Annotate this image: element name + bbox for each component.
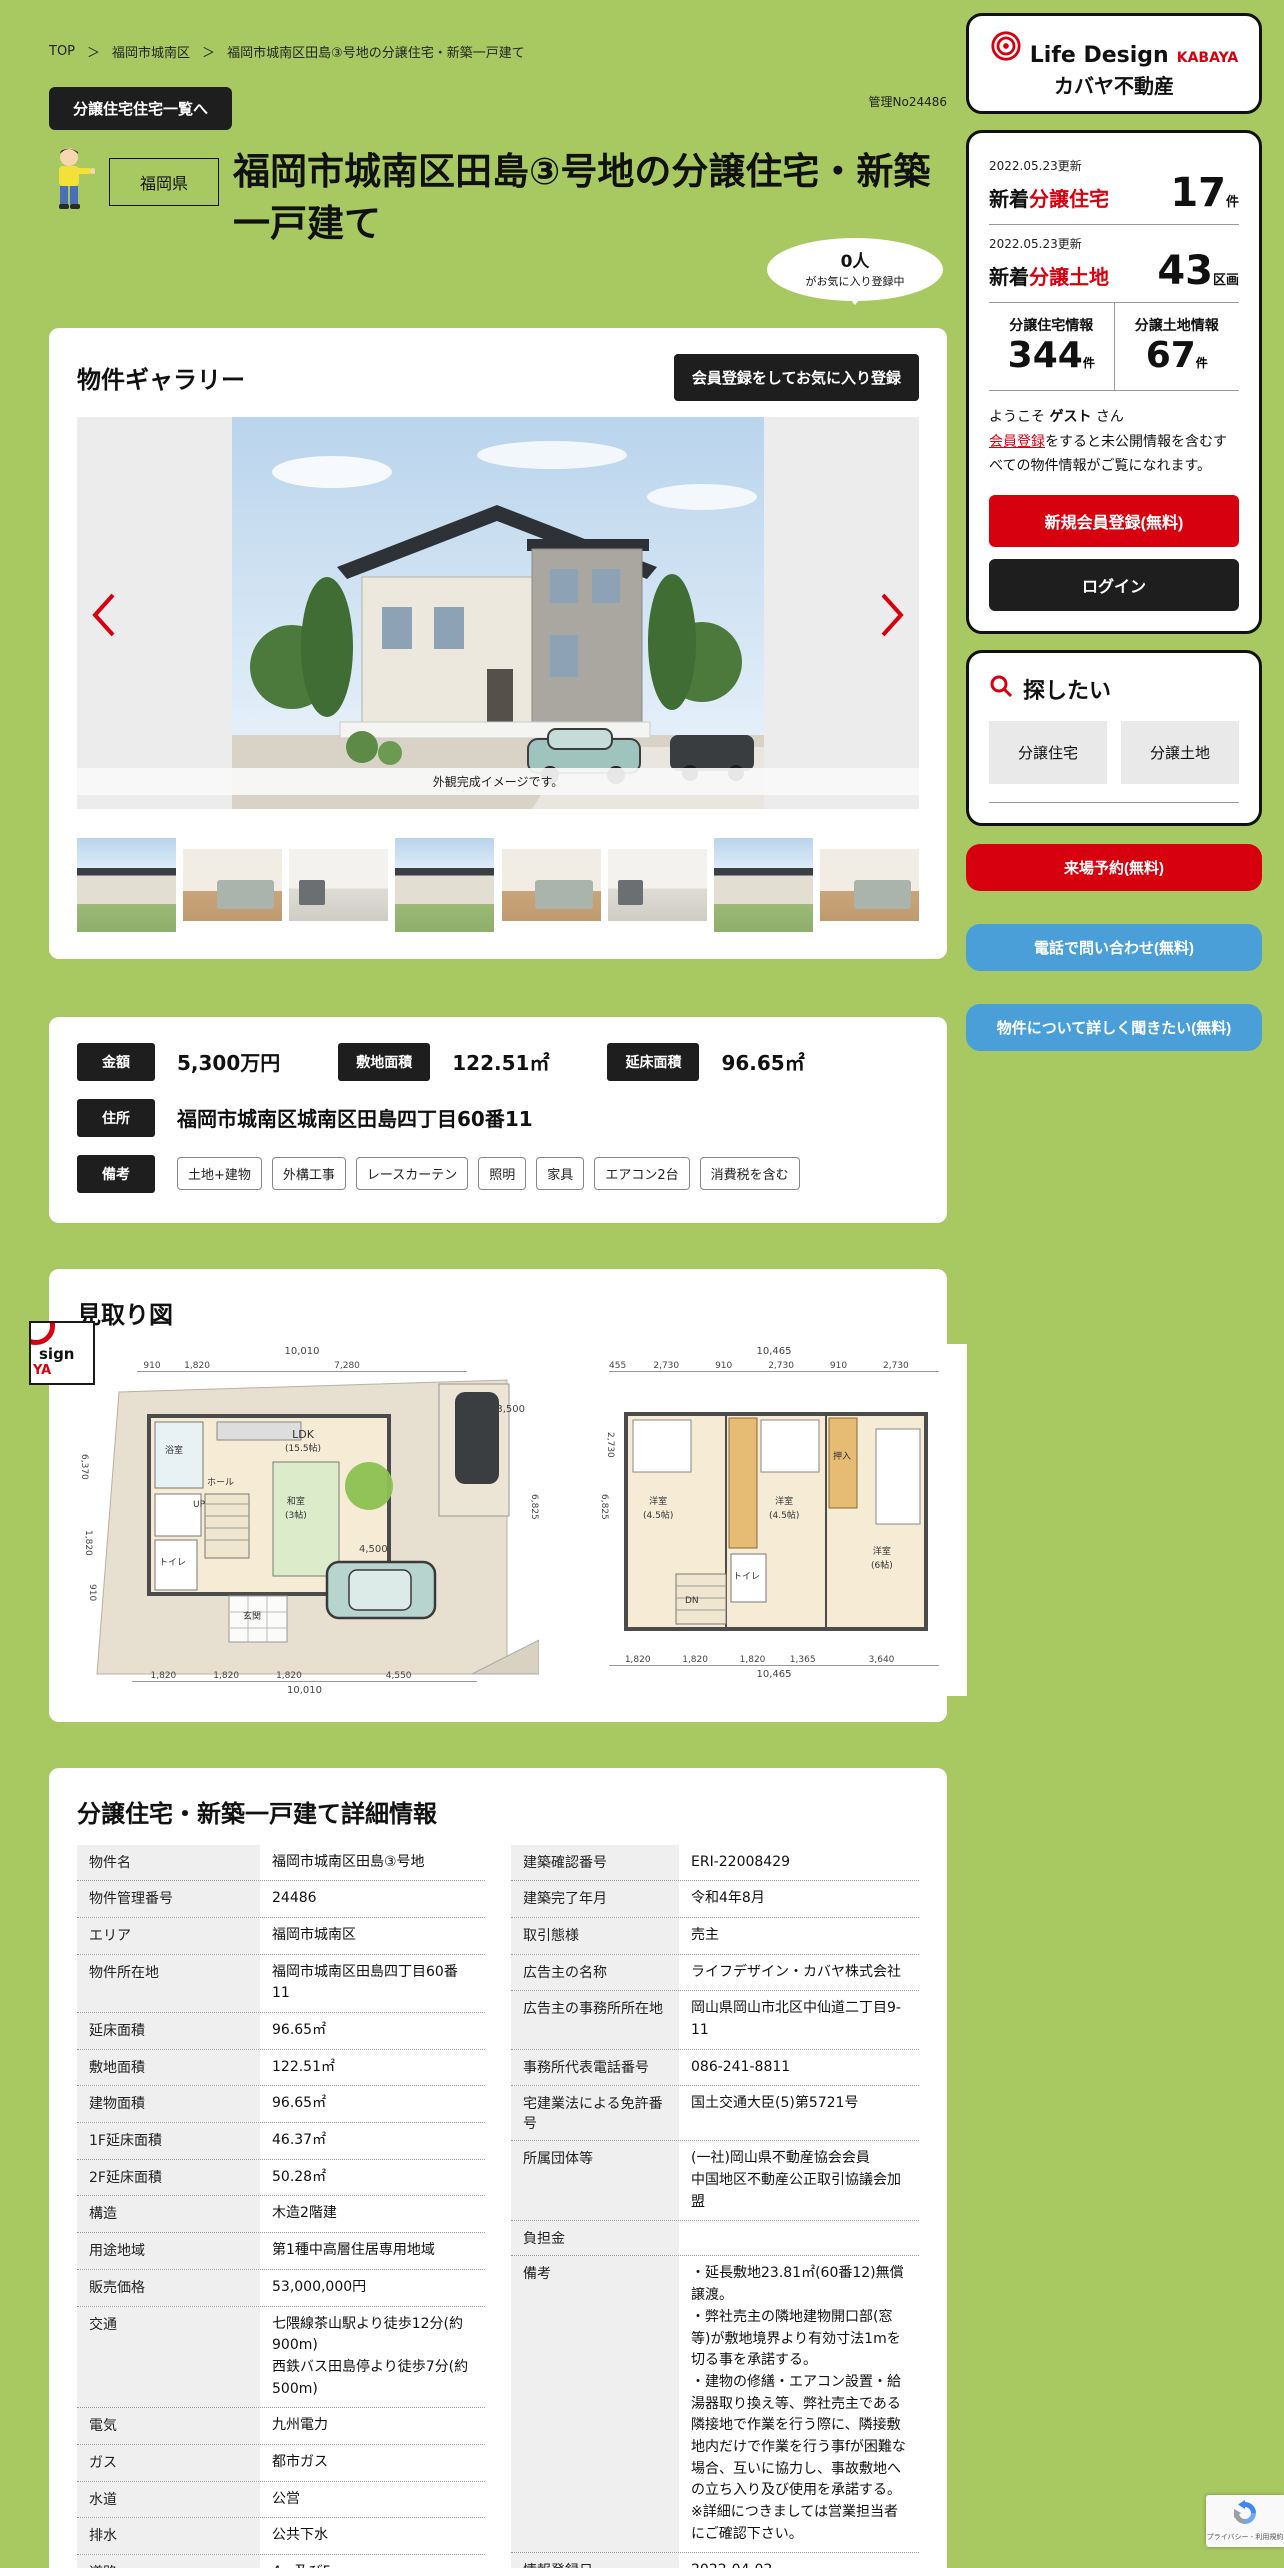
- total-land-count: 67: [1146, 335, 1196, 376]
- table-row: 取引態様売主: [511, 1918, 919, 1955]
- total-house-count: 344: [1008, 335, 1083, 376]
- gallery-prev-arrow[interactable]: [87, 589, 121, 641]
- table-row: 販売価格53,000,000円: [77, 2270, 485, 2307]
- dimension: 1,820: [83, 1530, 93, 1556]
- dimension: 6,370: [79, 1454, 89, 1480]
- member-register-link[interactable]: 会員登録: [989, 434, 1045, 450]
- back-to-list-button[interactable]: 分譲住宅住宅一覧へ: [49, 87, 232, 130]
- phone-inquiry-button[interactable]: 電話で問い合わせ(無料): [966, 924, 1262, 971]
- search-land-button[interactable]: 分譲土地: [1121, 721, 1239, 784]
- note-tag: 家具: [536, 1157, 584, 1190]
- room-label-washitsu: 和室(3帖): [285, 1494, 307, 1523]
- room-label-toilet: トイレ: [159, 1558, 186, 1569]
- search-house-button[interactable]: 分譲住宅: [989, 721, 1107, 784]
- details-table-left: 物件名福岡市城南区田島③号地 物件管理番号24486 エリア福岡市城南区 物件所…: [77, 1845, 485, 2568]
- search-icon: [989, 674, 1013, 704]
- table-row: 2F延床面積50.28㎡: [77, 2160, 485, 2197]
- table-row: ガス都市ガス: [77, 2445, 485, 2482]
- kabaya-logo-fragment: sign YA: [29, 1321, 95, 1385]
- floor-area-chip: 延床面積: [607, 1043, 699, 1081]
- table-row: 物件名福岡市城南区田島③号地: [77, 1845, 485, 1882]
- brand-name: Life Design: [1030, 43, 1169, 68]
- house-render-image: [232, 417, 764, 809]
- room-label-up: UP: [193, 1500, 205, 1511]
- table-row: 広告主の名称ライフデザイン・カバヤ株式会社: [511, 1955, 919, 1992]
- table-row: 水道公営: [77, 2482, 485, 2519]
- total-house-stat: 分譲住宅情報 344件: [989, 303, 1114, 390]
- sidebar: Life Design KABAYA カバヤ不動産 2022.05.23更新 新…: [966, 13, 1262, 1051]
- gallery-thumbnail-exterior[interactable]: [77, 838, 176, 932]
- stats-card: 2022.05.23更新 新着分譲住宅 17件 2022.05.23更新 新着分…: [966, 130, 1262, 634]
- note-tag: レースカーテン: [356, 1157, 468, 1190]
- dimension: 6,825: [599, 1494, 609, 1520]
- brand-accent: KABAYA: [1177, 50, 1238, 66]
- breadcrumb-link-top[interactable]: TOP: [49, 44, 75, 59]
- gallery-thumbnail-kitchen[interactable]: [289, 849, 388, 921]
- favorite-count-bubble: 0人 がお気に入り登録中: [767, 238, 943, 301]
- gallery-thumbnail-exterior[interactable]: [395, 838, 494, 932]
- table-row: 1F延床面積46.37㎡: [77, 2123, 485, 2160]
- mascot-character-icon: [49, 146, 95, 216]
- land-area-chip: 敷地面積: [338, 1043, 430, 1081]
- floorplan-title: 見取り図: [77, 1295, 919, 1330]
- table-row: 排水公共下水: [77, 2518, 485, 2555]
- breadcrumb: TOP ＞ 福岡市城南区 ＞ 福岡市城南区田島③号地の分譲住宅・新築一戸建て: [49, 42, 947, 61]
- table-row: 宅建業法による免許番号国土交通大臣(5)第5721号: [511, 2086, 919, 2141]
- dimension: 6,825: [529, 1494, 539, 1520]
- dimension: 10,010: [137, 1346, 467, 1357]
- table-row: 所属団体等(一社)岡山県不動産協会会員 中国地区不動産公正取引協議会加盟: [511, 2141, 919, 2221]
- title-row: 福岡県 福岡市城南区田島③号地の分譲住宅・新築一戸建て: [49, 146, 947, 250]
- room-label-bedroom3: 洋室(6帖): [871, 1544, 893, 1573]
- table-row: 物件管理番号24486: [77, 1881, 485, 1918]
- note-tags: 土地+建物 外構工事 レースカーテン 照明 家具 エアコン2台 消費税を含む: [177, 1157, 800, 1190]
- dimension: 910: [87, 1584, 97, 1601]
- land-area-value: 122.51㎡: [452, 1047, 549, 1076]
- new-land-stat: 2022.05.23更新 新着分譲土地 43区画: [989, 225, 1239, 303]
- room-label-dn: DN: [685, 1596, 699, 1607]
- gallery-thumbnails: [77, 837, 919, 933]
- table-row: 構造木造2階建: [77, 2196, 485, 2233]
- new-member-register-button[interactable]: 新規会員登録(無料): [989, 495, 1239, 547]
- management-number: 管理No24486: [869, 93, 948, 110]
- main-column: TOP ＞ 福岡市城南区 ＞ 福岡市城南区田島③号地の分譲住宅・新築一戸建て 分…: [49, 0, 947, 2568]
- page: TOP ＞ 福岡市城南区 ＞ 福岡市城南区田島③号地の分譲住宅・新築一戸建て 分…: [0, 0, 1284, 2568]
- top-row: 分譲住宅住宅一覧へ 管理No24486: [49, 87, 947, 130]
- table-row: 事務所代表電話番号086-241-8811: [511, 2050, 919, 2087]
- room-label-entrance: 玄関: [243, 1612, 261, 1623]
- table-row: 備考・延長敷地23.81㎡(60番12)無償譲渡。 ・弊社売主の隣地建物開口部(…: [511, 2256, 919, 2553]
- note-tag: 照明: [478, 1157, 526, 1190]
- floorplan-section: 見取り図 sign YA: [49, 1269, 947, 1722]
- new-land-count: 43: [1157, 248, 1213, 294]
- table-row: 広告主の事務所所在地岡山県岡山市北区中仙道二丁目9-11: [511, 1991, 919, 2049]
- price-value: 5,300万円: [177, 1047, 280, 1076]
- property-inquiry-button[interactable]: 物件について詳しく聞きたい(無料): [966, 1004, 1262, 1051]
- details-section: 分譲住宅・新築一戸建て詳細情報 物件名福岡市城南区田島③号地 物件管理番号244…: [49, 1768, 947, 2568]
- company-logo-card[interactable]: Life Design KABAYA カバヤ不動産: [966, 13, 1262, 114]
- room-label-bedroom1: 洋室(4.5帖): [643, 1494, 673, 1523]
- table-row: 情報登録日2022-04-02: [511, 2553, 919, 2568]
- table-row: 交通七隈線茶山駅より徒歩12分(約900m) 西鉄バス田島停より徒歩7分(約50…: [77, 2307, 485, 2409]
- table-row: 負担金: [511, 2221, 919, 2256]
- gallery-thumbnail-living[interactable]: [183, 849, 282, 921]
- price-chip: 金額: [77, 1043, 155, 1081]
- new-house-stat: 2022.05.23更新 新着分譲住宅 17件: [989, 147, 1239, 225]
- favorite-count-label: がお気に入り登録中: [775, 273, 935, 289]
- note-tag: エアコン2台: [594, 1157, 689, 1190]
- dimension: 10,465: [609, 1669, 939, 1680]
- gallery-thumbnail-living[interactable]: [820, 849, 919, 921]
- address-chip: 住所: [77, 1099, 155, 1137]
- table-row: 建築確認番号ERI-22008429: [511, 1845, 919, 1882]
- note-tag: 外構工事: [272, 1157, 346, 1190]
- breadcrumb-link-area[interactable]: 福岡市城南区: [112, 42, 190, 61]
- breadcrumb-separator: ＞: [87, 42, 100, 61]
- room-label-bath: 浴室: [165, 1446, 183, 1457]
- dimension: 4,500: [359, 1544, 388, 1555]
- welcome-message: ようこそ ゲスト さん 会員登録をすると未公開情報を含むすべての物件情報がご覧に…: [989, 391, 1239, 483]
- breadcrumb-current: 福岡市城南区田島③号地の分譲住宅・新築一戸建て: [227, 42, 525, 61]
- company-name: カバヤ不動産: [979, 70, 1249, 99]
- recaptcha-label: プライバシー - 利用規約: [1207, 2532, 1284, 2542]
- favorite-count: 0人: [775, 247, 935, 272]
- gallery-title: 物件ギャラリー: [77, 360, 245, 395]
- search-card: 探したい 分譲住宅 分譲土地: [966, 650, 1262, 826]
- new-house-count: 17: [1170, 170, 1226, 216]
- room-label-ldk: LDK(15.5帖): [285, 1428, 321, 1456]
- table-row: 物件所在地福岡市城南区田島四丁目60番11: [77, 1955, 485, 2013]
- kabaya-rings-logo-icon: [990, 30, 1022, 66]
- table-row: 電気九州電力: [77, 2408, 485, 2445]
- floor-area-value: 96.65㎡: [721, 1047, 804, 1076]
- room-label-closet: 押入: [833, 1452, 851, 1463]
- gallery-section: 物件ギャラリー 会員登録をしてお気に入り登録: [49, 328, 947, 959]
- dimension: 10,010: [132, 1685, 477, 1696]
- table-row: 敷地面積122.51㎡: [77, 2050, 485, 2087]
- search-title: 探したい: [1023, 673, 1111, 705]
- page-title: 福岡市城南区田島③号地の分譲住宅・新築一戸建て: [233, 146, 947, 250]
- guest-name: ゲスト: [1049, 409, 1091, 425]
- details-title: 分譲住宅・新築一戸建て詳細情報: [77, 1794, 919, 1829]
- prefecture-badge: 福岡県: [109, 158, 219, 206]
- address-value: 福岡市城南区城南区田島四丁目60番11: [177, 1103, 533, 1132]
- room-label-hall: ホール: [207, 1478, 234, 1489]
- notes-chip: 備考: [77, 1155, 155, 1193]
- breadcrumb-separator: ＞: [202, 42, 215, 61]
- gallery-thumbnail-exterior[interactable]: [714, 838, 813, 932]
- note-tag: 土地+建物: [177, 1157, 262, 1190]
- login-button[interactable]: ログイン: [989, 559, 1239, 611]
- floorplan-2f: 10,465 455 2,730 910 2,730 910 2,730 6,8…: [581, 1344, 967, 1696]
- dimension: 3,500: [496, 1404, 525, 1415]
- summary-section: 金額 5,300万円 敷地面積 122.51㎡ 延床面積 96.65㎡ 住所 福…: [49, 1017, 947, 1223]
- details-table-right: 建築確認番号ERI-22008429 建築完了年月令和4年8月 取引態様売主 広…: [511, 1845, 919, 2568]
- recaptcha-icon: [1232, 2500, 1258, 2530]
- table-row: 建物面積96.65㎡: [77, 2086, 485, 2123]
- visit-reservation-button[interactable]: 来場予約(無料): [966, 844, 1262, 891]
- table-row: 用途地域第1種中高層住居専用地域: [77, 2233, 485, 2270]
- gallery-thumbnail-living[interactable]: [502, 849, 601, 921]
- photo-caption: 外観完成イメージです。: [77, 768, 919, 795]
- note-tag: 消費税を含む: [700, 1157, 800, 1190]
- table-row: 建築完了年月令和4年8月: [511, 1881, 919, 1918]
- floorplan-1f: 10,010 910 1,820 7,280 3,500 6,370 1,820…: [77, 1344, 539, 1696]
- favorite-register-button[interactable]: 会員登録をしてお気に入り登録: [674, 354, 919, 401]
- recaptcha-badge[interactable]: プライバシー - 利用規約: [1206, 2495, 1284, 2547]
- dimension: 2,730: [605, 1432, 615, 1458]
- room-label-toilet: トイレ: [733, 1572, 760, 1583]
- table-row: 道路4m及び5m: [77, 2555, 485, 2568]
- dimension: 10,465: [609, 1346, 939, 1357]
- gallery-thumbnail-kitchen[interactable]: [608, 849, 707, 921]
- main-photo: 外観完成イメージです。: [77, 417, 919, 809]
- gallery-next-arrow[interactable]: [875, 589, 909, 641]
- room-label-bedroom2: 洋室(4.5帖): [769, 1494, 799, 1523]
- table-row: 延床面積96.65㎡: [77, 2013, 485, 2050]
- table-row: エリア福岡市城南区: [77, 1918, 485, 1955]
- total-land-stat: 分譲土地情報 67件: [1114, 303, 1240, 390]
